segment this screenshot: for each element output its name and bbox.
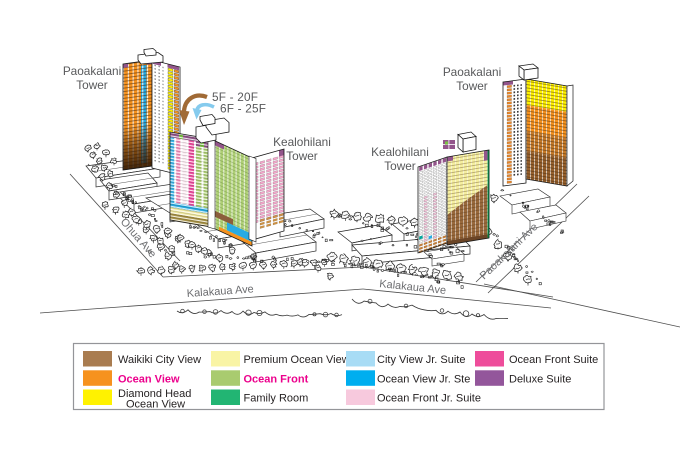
svg-text:Ocean Front: Ocean Front	[244, 374, 309, 386]
svg-text:City View Jr. Suite: City View Jr. Suite	[377, 354, 465, 366]
svg-text:Premium Ocean View: Premium Ocean View	[244, 354, 350, 366]
svg-text:Ocean View: Ocean View	[118, 374, 180, 386]
svg-text:Tower: Tower	[286, 149, 318, 163]
svg-text:Kealohilani: Kealohilani	[371, 145, 429, 159]
svg-text:Ocean View: Ocean View	[126, 398, 185, 410]
svg-text:6F - 25F: 6F - 25F	[220, 102, 266, 116]
svg-text:Family Room: Family Room	[244, 393, 309, 405]
svg-text:Tower: Tower	[384, 159, 416, 173]
svg-text:Paoakalani: Paoakalani	[63, 64, 121, 78]
svg-text:Waikiki City View: Waikiki City View	[118, 354, 201, 366]
svg-text:Tower: Tower	[76, 78, 108, 92]
svg-text:Ocean Front Jr. Suite: Ocean Front Jr. Suite	[377, 393, 481, 405]
svg-text:Deluxe Suite: Deluxe Suite	[509, 374, 571, 386]
svg-text:Ocean Front Suite: Ocean Front Suite	[509, 354, 598, 366]
svg-text:Kealohilani: Kealohilani	[273, 135, 331, 149]
svg-text:Tower: Tower	[456, 79, 488, 93]
svg-text:Paoakalani: Paoakalani	[443, 65, 501, 79]
svg-text:Ocean View Jr. Ste: Ocean View Jr. Ste	[377, 374, 470, 386]
